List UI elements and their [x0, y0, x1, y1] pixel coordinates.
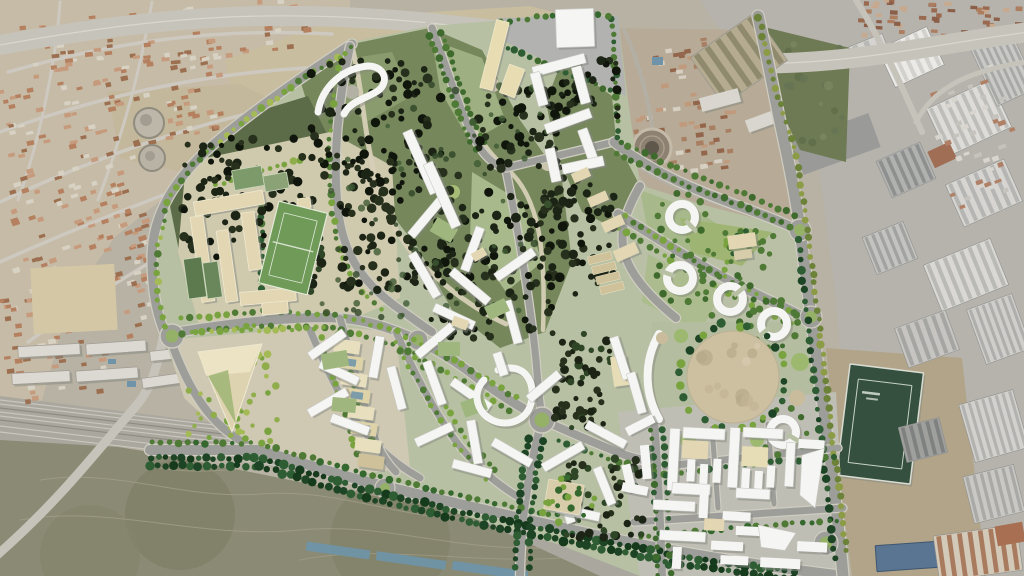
building	[653, 499, 698, 513]
building	[711, 541, 746, 554]
sand-circle	[789, 390, 805, 406]
swimming-pool	[652, 57, 663, 65]
building	[686, 459, 697, 484]
green-circle	[791, 353, 809, 371]
block-slab	[683, 427, 728, 442]
screenshot-root	[0, 0, 1024, 576]
building	[672, 547, 684, 572]
circle-feature	[145, 151, 155, 161]
building	[712, 459, 724, 486]
campus-building	[262, 301, 291, 318]
building	[659, 530, 708, 545]
building	[797, 541, 830, 555]
block-slab	[743, 427, 786, 441]
landmark-building	[555, 8, 597, 50]
swimming-pool	[127, 381, 136, 387]
building	[735, 488, 772, 502]
sand-circle	[656, 332, 668, 344]
circle-feature	[140, 114, 152, 126]
courtyard-beige	[704, 518, 725, 531]
green-circle	[674, 329, 688, 343]
circle-feature	[535, 413, 550, 428]
building	[760, 557, 803, 571]
building	[766, 465, 777, 490]
building	[698, 492, 711, 521]
courtyard	[331, 397, 356, 413]
building	[722, 511, 753, 524]
courtyard-beige	[741, 446, 768, 467]
building	[741, 468, 752, 491]
circle-feature	[794, 224, 806, 236]
swimming-pool	[108, 359, 116, 364]
courtyard-beige	[682, 440, 709, 459]
circle-feature	[166, 330, 179, 343]
circle-feature	[125, 460, 235, 570]
vacant-lot	[30, 264, 117, 334]
building	[720, 555, 751, 568]
masterplan-aerial-map	[0, 0, 1024, 576]
courtyard	[438, 342, 460, 356]
